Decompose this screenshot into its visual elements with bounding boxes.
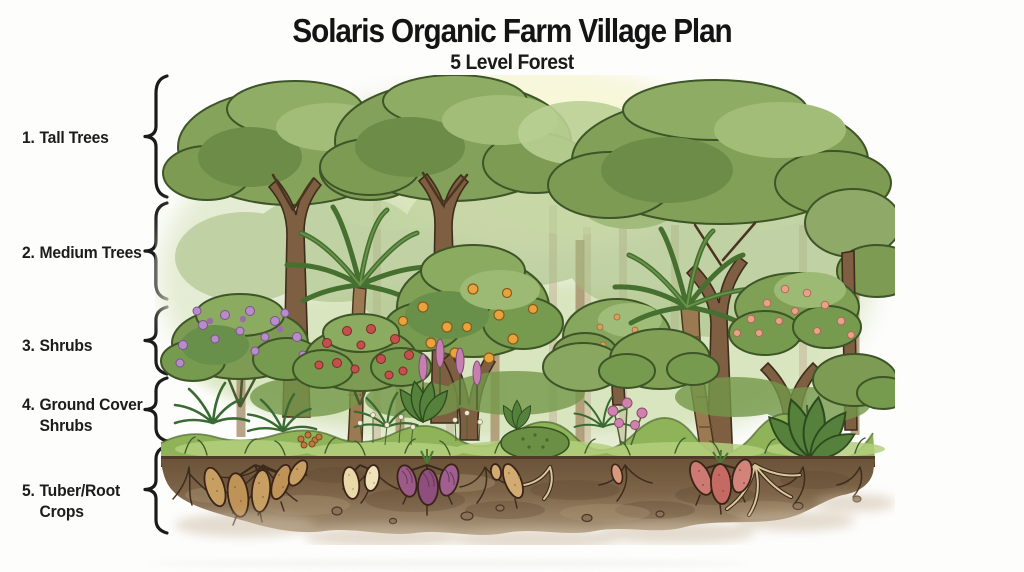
page-title: Solaris Organic Farm Village Plan [51, 12, 973, 50]
legend-item-tuber-root: 5. Tuber/Root Crops [22, 481, 120, 523]
legend-item-medium-trees: 2. Medium Trees [22, 243, 142, 264]
legend-item-ground-cover: 4. Ground Cover Shrubs [22, 395, 143, 437]
legend-label: Tall Trees [39, 128, 108, 149]
soil-cross-section [161, 449, 895, 545]
herb-mound [501, 427, 569, 459]
legend-number: 3. [22, 336, 35, 357]
page-subtitle: 5 Level Forest [41, 51, 983, 75]
forest-illustration [155, 75, 895, 545]
legend-label: Crops [39, 502, 120, 523]
legend-label: Medium Trees [39, 243, 141, 264]
farm-plan-poster: Solaris Organic Farm Village Plan 5 Leve… [0, 0, 1024, 572]
page-shadow [150, 560, 750, 567]
legend-label: Shrubs [39, 416, 142, 437]
legend-number: 4. [22, 395, 35, 437]
legend-label: Ground Cover [39, 395, 142, 416]
header: Solaris Organic Farm Village Plan 5 Leve… [0, 12, 1024, 75]
legend-number: 1. [22, 128, 35, 149]
legend-number: 5. [22, 481, 35, 523]
legend-label: Tuber/Root [39, 481, 120, 502]
legend-item-shrubs: 3. Shrubs [22, 336, 92, 357]
legend-item-tall-trees: 1. Tall Trees [22, 128, 109, 149]
legend-label: Shrubs [39, 336, 92, 357]
legend-number: 2. [22, 243, 35, 264]
